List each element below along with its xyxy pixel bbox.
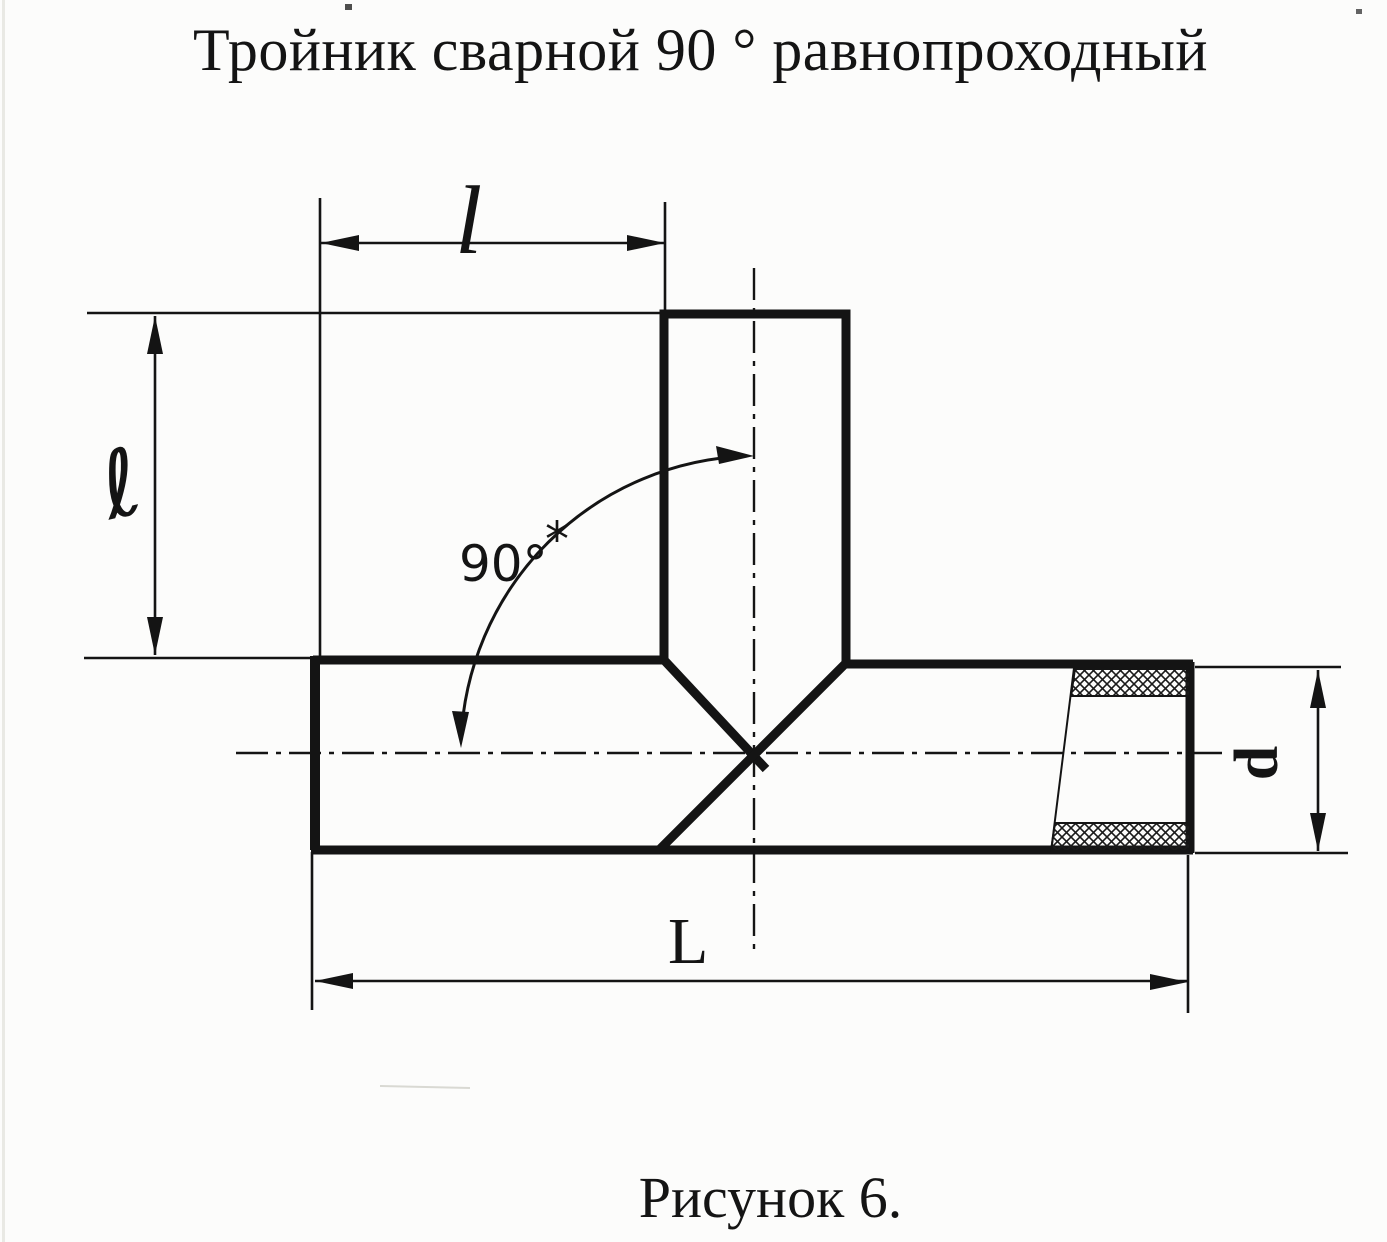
dim-L-arrowhead-left [315,973,353,989]
angle-arc-arrowhead-bottom [452,711,469,748]
figure-caption: Рисунок 6. [77,1164,1387,1231]
section-wall-hatch-bottom [1051,823,1190,851]
angle-arc-arrowhead-top [716,446,754,464]
dim-l-label: l [455,167,482,275]
tee-technical-drawing: l ℓ 90° * d L [0,0,1387,1242]
dim-ell-arrowhead-bottom [147,617,163,655]
dim-L-label: L [668,905,708,978]
section-wall-hatch-top [1071,669,1190,696]
dim-d-arrowhead-bottom [1310,813,1326,851]
dim-L-arrowhead-right [1150,974,1188,990]
angle-footnote-star: * [545,512,569,568]
angle-label: 90° [459,535,548,593]
scan-speck [1356,9,1362,14]
figure-page: Тройник сварной 90 ° равнопроходный [0,0,1387,1242]
scan-artifact-line [380,1086,470,1088]
dim-l-arrowhead-left [321,235,359,251]
dim-ell-label: ℓ [87,428,152,542]
scan-speck [345,4,352,10]
dim-ell-arrowhead-top [147,316,163,354]
dim-d-arrowhead-top [1310,670,1326,708]
dim-d-label: d [1223,746,1291,780]
dim-l-arrowhead-right [627,235,665,251]
